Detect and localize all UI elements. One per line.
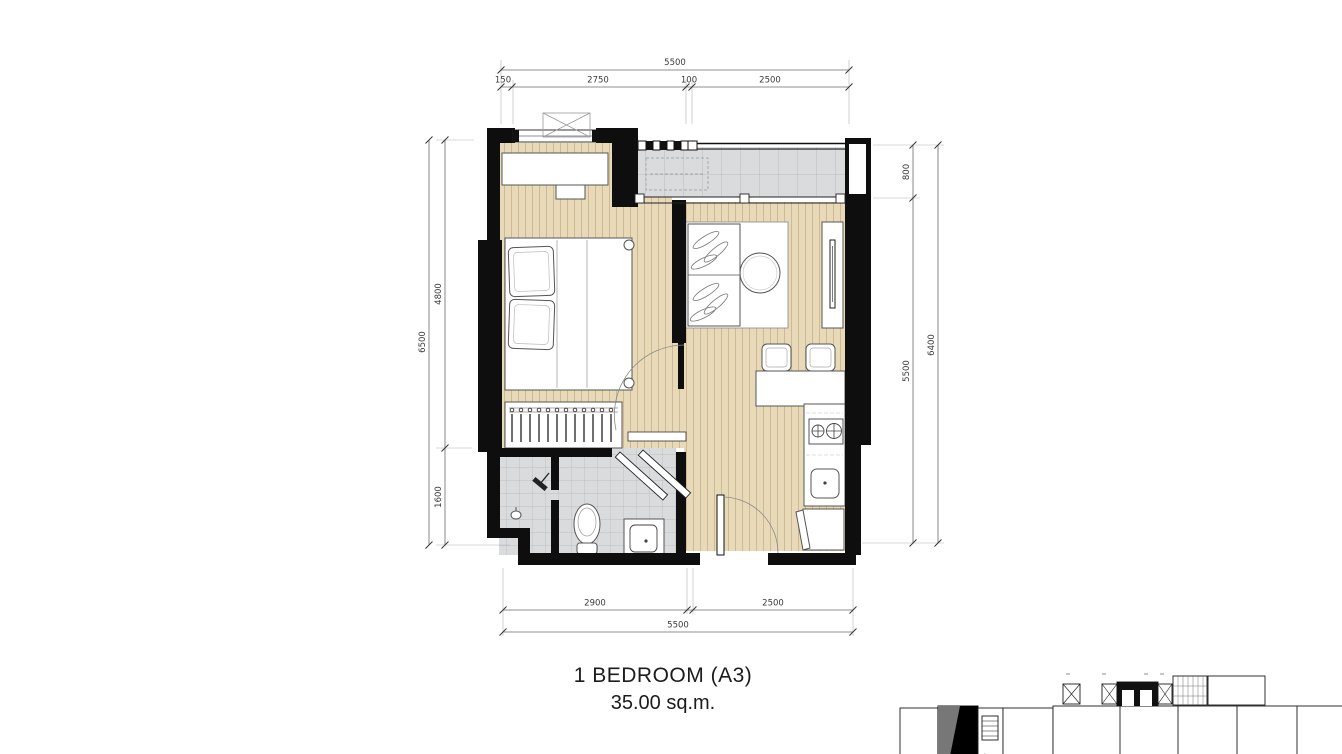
toilet — [574, 504, 600, 554]
dim-left: 6500 4800 1600 — [418, 137, 449, 549]
kitchen-sink — [811, 469, 839, 498]
dim-top: 5500 150 2750 100 2500 — [495, 58, 853, 91]
floor-plan-drawing: 5500 150 2750 100 2500 2900 2500 5500 65… — [0, 0, 1342, 754]
dim-right-overall: 6400 — [927, 334, 937, 356]
kitchen-counter — [804, 404, 845, 506]
closet-protrusion — [556, 185, 585, 199]
key-plan-core — [1063, 674, 1265, 706]
threshold — [628, 432, 686, 441]
dim-left-overall: 6500 — [418, 331, 428, 353]
balcony-floor — [638, 147, 845, 197]
dim-left-seg1: 4800 — [434, 283, 444, 305]
coffee-table — [740, 253, 780, 293]
dim-top-seg2: 2750 — [587, 76, 609, 86]
floor-plan-page: 5500 150 2750 100 2500 2900 2500 5500 65… — [0, 0, 1342, 754]
bed — [505, 238, 634, 390]
vanity-sink — [624, 519, 664, 557]
dim-right-seg1: 800 — [902, 164, 912, 180]
dim-right-seg2: 5500 — [902, 360, 912, 382]
dim-top-seg3: 100 — [681, 76, 697, 86]
shaft-opening — [849, 144, 866, 194]
dim-top-seg4: 2500 — [759, 76, 781, 86]
balcony-railing — [638, 141, 845, 150]
key-plan-stair-room — [978, 708, 1003, 754]
wardrobe — [505, 402, 622, 448]
dining-table — [756, 371, 845, 406]
key-plan-unit-strip — [1053, 706, 1342, 754]
dim-bottom-overall: 5500 — [667, 621, 689, 631]
built-in-closet — [502, 153, 608, 185]
unit-area-label: 35.00 sq.m. — [513, 692, 813, 715]
title-block: 1 BEDROOM (A3) 35.00 sq.m. — [513, 664, 813, 715]
dim-top-overall: 5500 — [664, 58, 686, 68]
dim-left-seg2: 1600 — [434, 486, 444, 508]
refrigerator — [796, 509, 844, 550]
dim-bottom-seg2: 2500 — [762, 599, 784, 609]
stove — [809, 419, 843, 444]
dim-top-seg1: 150 — [495, 76, 511, 86]
key-plan — [900, 674, 1342, 754]
dim-right: 800 5500 6400 — [902, 142, 942, 547]
sofa-set — [686, 222, 788, 328]
dim-bottom: 2900 2500 5500 — [500, 599, 857, 636]
bedroom-window — [513, 130, 598, 142]
vent-grille — [638, 141, 697, 150]
tv-console — [822, 222, 843, 328]
key-plan-highlighted-unit — [938, 706, 978, 754]
key-plan-lobby — [1173, 676, 1207, 705]
unit-type-title: 1 BEDROOM (A3) — [513, 664, 813, 688]
dim-bottom-seg1: 2900 — [584, 599, 606, 609]
